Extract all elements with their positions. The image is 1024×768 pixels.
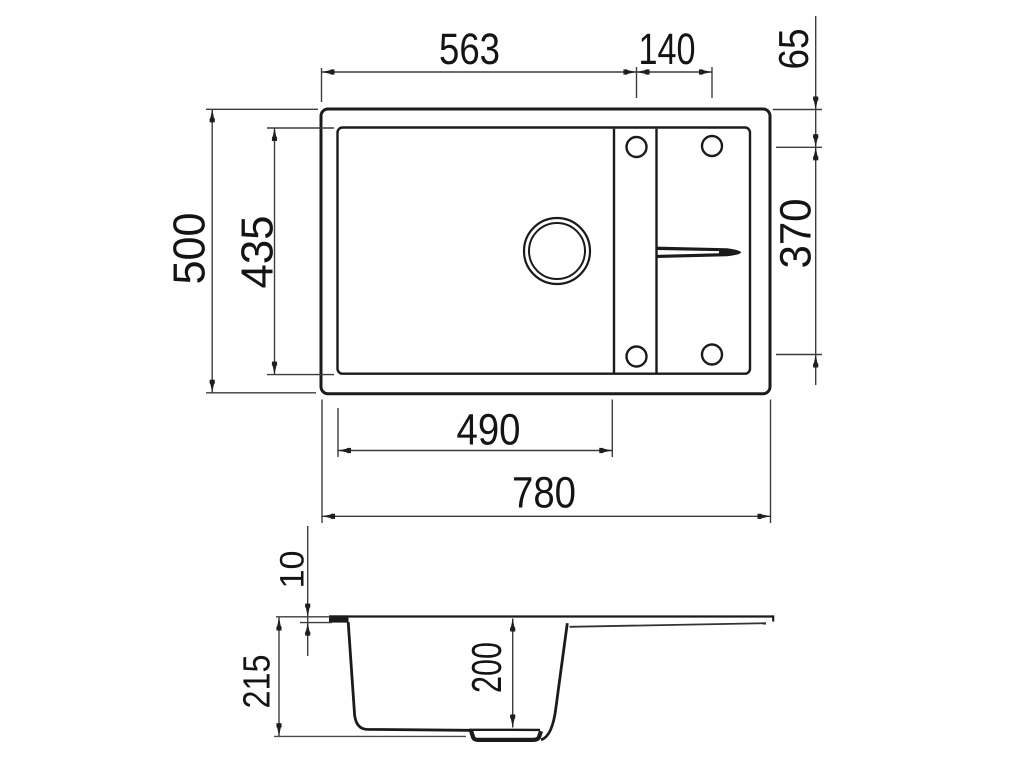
svg-text:780: 780	[512, 469, 576, 518]
svg-text:563: 563	[439, 25, 500, 74]
svg-text:370: 370	[772, 199, 821, 269]
svg-text:65: 65	[770, 29, 817, 70]
svg-text:200: 200	[463, 642, 510, 693]
svg-text:140: 140	[639, 25, 696, 74]
svg-text:10: 10	[274, 551, 312, 589]
svg-text:215: 215	[237, 655, 279, 709]
svg-text:435: 435	[232, 216, 283, 289]
svg-text:490: 490	[457, 406, 521, 455]
svg-text:500: 500	[164, 213, 215, 285]
